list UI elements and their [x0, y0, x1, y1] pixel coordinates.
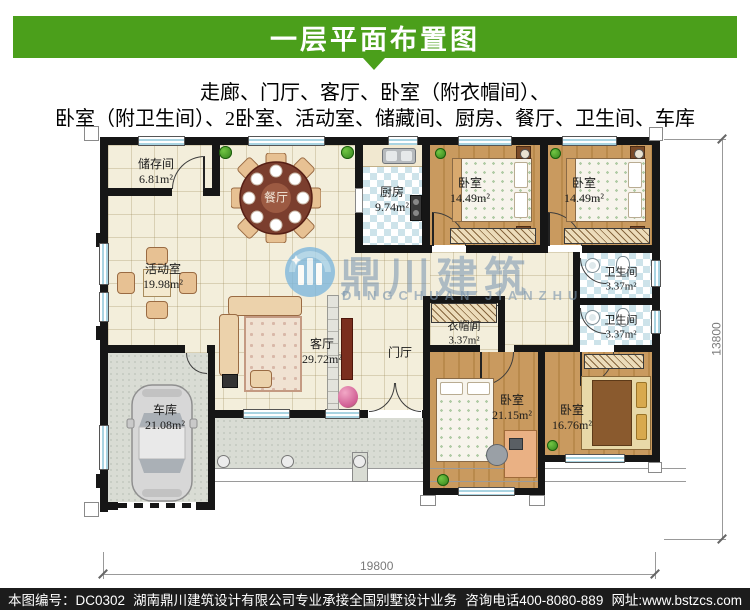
drawing-number: 本图编号：DC0302 — [8, 589, 125, 609]
window — [458, 136, 512, 146]
room-label-bath1: 卫生间3.37m² — [605, 266, 638, 294]
corner-mark — [529, 495, 545, 506]
window — [325, 409, 360, 419]
porch-step-line — [215, 468, 686, 469]
sink-basin — [386, 151, 397, 161]
plant-icon — [550, 148, 561, 159]
wall — [582, 245, 660, 253]
wall — [422, 145, 430, 253]
window — [243, 409, 290, 419]
tv-cabinet — [341, 318, 353, 380]
window — [138, 136, 185, 146]
wall — [290, 410, 325, 418]
wall-pier — [96, 474, 108, 488]
page: 一层平面布置图 走廊、门厅、客厅、卧室（附衣帽间）、 卧室（附卫生间）、2卧室、… — [0, 0, 750, 610]
watermark-logo-icon — [283, 245, 337, 299]
wall — [422, 410, 430, 418]
wardrobe — [584, 354, 644, 369]
pillow — [467, 382, 490, 395]
subtitle-line1: 走廊、门厅、客厅、卧室（附衣帽间）、 — [0, 76, 750, 105]
watermark-name-en: DINGCHUAN JIANZHU — [342, 288, 583, 303]
corner-mark — [84, 502, 99, 517]
window — [248, 136, 325, 146]
room-label-bedroom3: 卧室21.15m² — [492, 393, 532, 423]
window — [99, 425, 109, 470]
pillow — [628, 192, 642, 218]
subtitle-line2: 卧室（附卫生间）、2卧室、活动室、储藏间、厨房、餐厅、卫生间、车库 — [0, 102, 750, 131]
dim-label-height: 13800 — [710, 322, 724, 355]
wardrobe — [450, 228, 536, 244]
wall — [580, 298, 660, 305]
garage-door-dashed — [118, 503, 196, 508]
contact-phone: 咨询电话400-8080-889 — [465, 589, 603, 609]
wall — [625, 455, 660, 462]
dim-extension-line — [664, 539, 726, 540]
nightstand — [630, 146, 645, 159]
room-label-garage: 车库21.08m² — [145, 403, 185, 433]
wall — [203, 188, 220, 196]
sofa — [228, 296, 302, 316]
room-label-foyer: 门厅 — [388, 346, 412, 361]
tv-set — [222, 374, 238, 388]
stove-burner — [413, 210, 419, 216]
footer-bar: 本图编号：DC0302 湖南鼎川建筑设计有限公司专业承接全国别墅设计业务 咨询电… — [0, 588, 750, 610]
room-label-activity: 活动室19.98m² — [143, 262, 183, 292]
pillow — [628, 162, 642, 188]
chair — [117, 272, 135, 294]
plant-icon — [341, 146, 354, 159]
room-label-living: 客厅29.72m² — [302, 337, 342, 367]
window — [651, 260, 661, 287]
nightstand — [516, 146, 531, 159]
wall-pier — [96, 326, 108, 340]
porch-column — [281, 455, 294, 468]
corner-mark — [420, 495, 436, 506]
window — [565, 454, 625, 463]
wall — [100, 345, 185, 353]
dim-label-width: 19800 — [360, 559, 393, 573]
company-name: 湖南鼎川建筑设计有限公司专业承接全国别墅设计业务 — [133, 589, 457, 609]
car — [126, 383, 198, 503]
pillow — [636, 414, 647, 440]
dim-extension-line — [664, 139, 726, 140]
wall — [100, 188, 172, 196]
window — [651, 310, 661, 334]
title-bar: 一层平面布置图 — [13, 16, 737, 58]
stove-burner — [413, 199, 419, 205]
wall — [538, 352, 545, 495]
wall — [545, 455, 565, 462]
window — [99, 243, 109, 285]
porch-step-line — [215, 481, 686, 482]
corner-mark — [648, 462, 662, 473]
corner-mark — [84, 126, 99, 141]
porch-column — [353, 455, 366, 468]
pillow — [514, 192, 528, 218]
room-label-cloakroom: 衣帽间3.37m² — [448, 320, 481, 348]
room-label-bedroom4: 卧室16.76m² — [552, 403, 592, 433]
room-label-kitchen: 厨房9.74m² — [375, 185, 409, 215]
pillow — [514, 162, 528, 188]
bed-blanket — [592, 380, 632, 446]
title-pointer — [363, 58, 385, 70]
window — [458, 487, 515, 496]
wall — [208, 345, 215, 510]
bathroom-sink — [585, 310, 600, 325]
pillow — [636, 382, 647, 408]
room-label-dining: 餐厅 — [264, 191, 288, 206]
plant-icon — [219, 146, 232, 159]
pass-through-window — [355, 188, 363, 213]
porch-column — [217, 455, 230, 468]
wardrobe — [564, 228, 650, 244]
wall — [423, 488, 458, 495]
armchair — [250, 370, 272, 388]
computer-monitor — [509, 438, 523, 450]
bathroom-sink — [585, 258, 600, 273]
sofa — [219, 314, 239, 376]
room-label-bath2: 卫生间3.37m² — [605, 314, 638, 342]
room-label-storage: 储存间6.81m² — [138, 157, 174, 187]
window — [562, 136, 617, 146]
wall — [196, 502, 215, 510]
desk-chair — [486, 444, 508, 466]
room-label-bedroom2: 卧室14.49m² — [564, 176, 604, 206]
chair — [146, 301, 168, 319]
floor-porch — [215, 418, 423, 468]
wall — [360, 410, 368, 418]
page-title: 一层平面布置图 — [270, 18, 480, 57]
wall — [540, 145, 548, 253]
wall — [614, 345, 660, 352]
wall — [423, 296, 430, 495]
flower-icon — [338, 386, 358, 408]
corner-mark — [649, 127, 663, 141]
room-label-bedroom1: 卧室14.49m² — [450, 176, 490, 206]
wall — [100, 502, 118, 510]
dim-line-width — [103, 574, 656, 575]
pillow — [440, 382, 463, 395]
wall — [498, 303, 505, 352]
plant-icon — [435, 148, 446, 159]
plant-icon — [547, 440, 558, 451]
sink-basin — [401, 151, 412, 161]
wall — [514, 345, 580, 352]
window — [99, 292, 109, 322]
wall — [515, 488, 545, 495]
plant-icon — [437, 474, 449, 486]
website-url: 网址:www.bstzcs.com — [611, 589, 742, 609]
wall — [355, 145, 363, 188]
